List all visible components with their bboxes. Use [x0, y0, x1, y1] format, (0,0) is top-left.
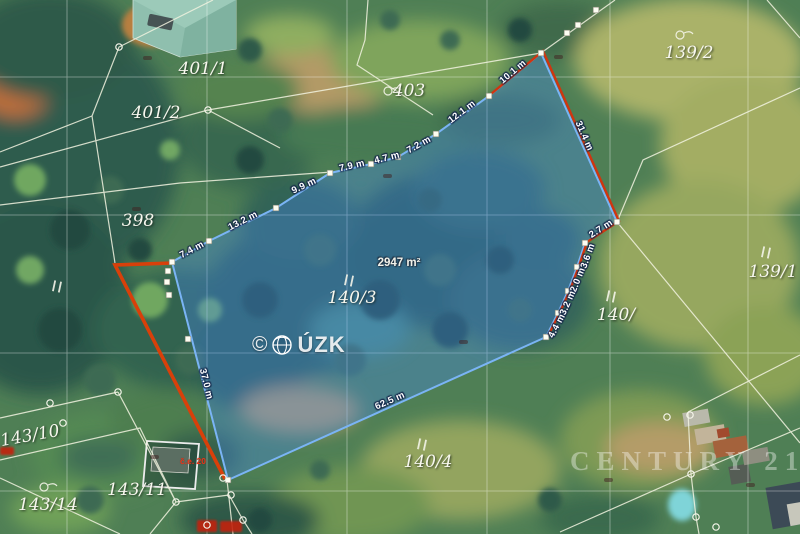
vertex-square [614, 219, 620, 225]
vertex-square [164, 279, 170, 285]
vertex-square [368, 161, 374, 167]
cuzk-text: ÚZK [297, 332, 345, 358]
vertex-square [166, 292, 172, 298]
vertex-square [273, 205, 279, 211]
aerial-map-canvas: 401/1401/2398403139/2139/1140/140/3140/4… [0, 0, 800, 534]
vertex-square [555, 310, 561, 316]
vertex-square [169, 259, 175, 265]
vertex-square [206, 238, 212, 244]
vertex-square [185, 336, 191, 342]
vertex-square [165, 268, 171, 274]
vertex-square [538, 50, 544, 56]
vertex-square [565, 288, 571, 294]
vertex-square [574, 264, 580, 270]
cuzk-watermark: © ÚZK [252, 332, 346, 358]
vertex-square [395, 154, 401, 160]
vertex-square [433, 131, 439, 137]
globe-icon [271, 334, 293, 356]
century21-watermark: CENTURY 21 [570, 446, 800, 477]
building-shed-outlined [143, 441, 199, 489]
vertex-square [486, 93, 492, 99]
vertex-square [582, 240, 588, 246]
vertex-square [575, 22, 581, 28]
vertex-square [593, 7, 599, 13]
vertex-square [564, 30, 570, 36]
copyright-symbol: © [252, 333, 267, 357]
vertex-square [327, 170, 333, 176]
vertex-square [543, 334, 549, 340]
